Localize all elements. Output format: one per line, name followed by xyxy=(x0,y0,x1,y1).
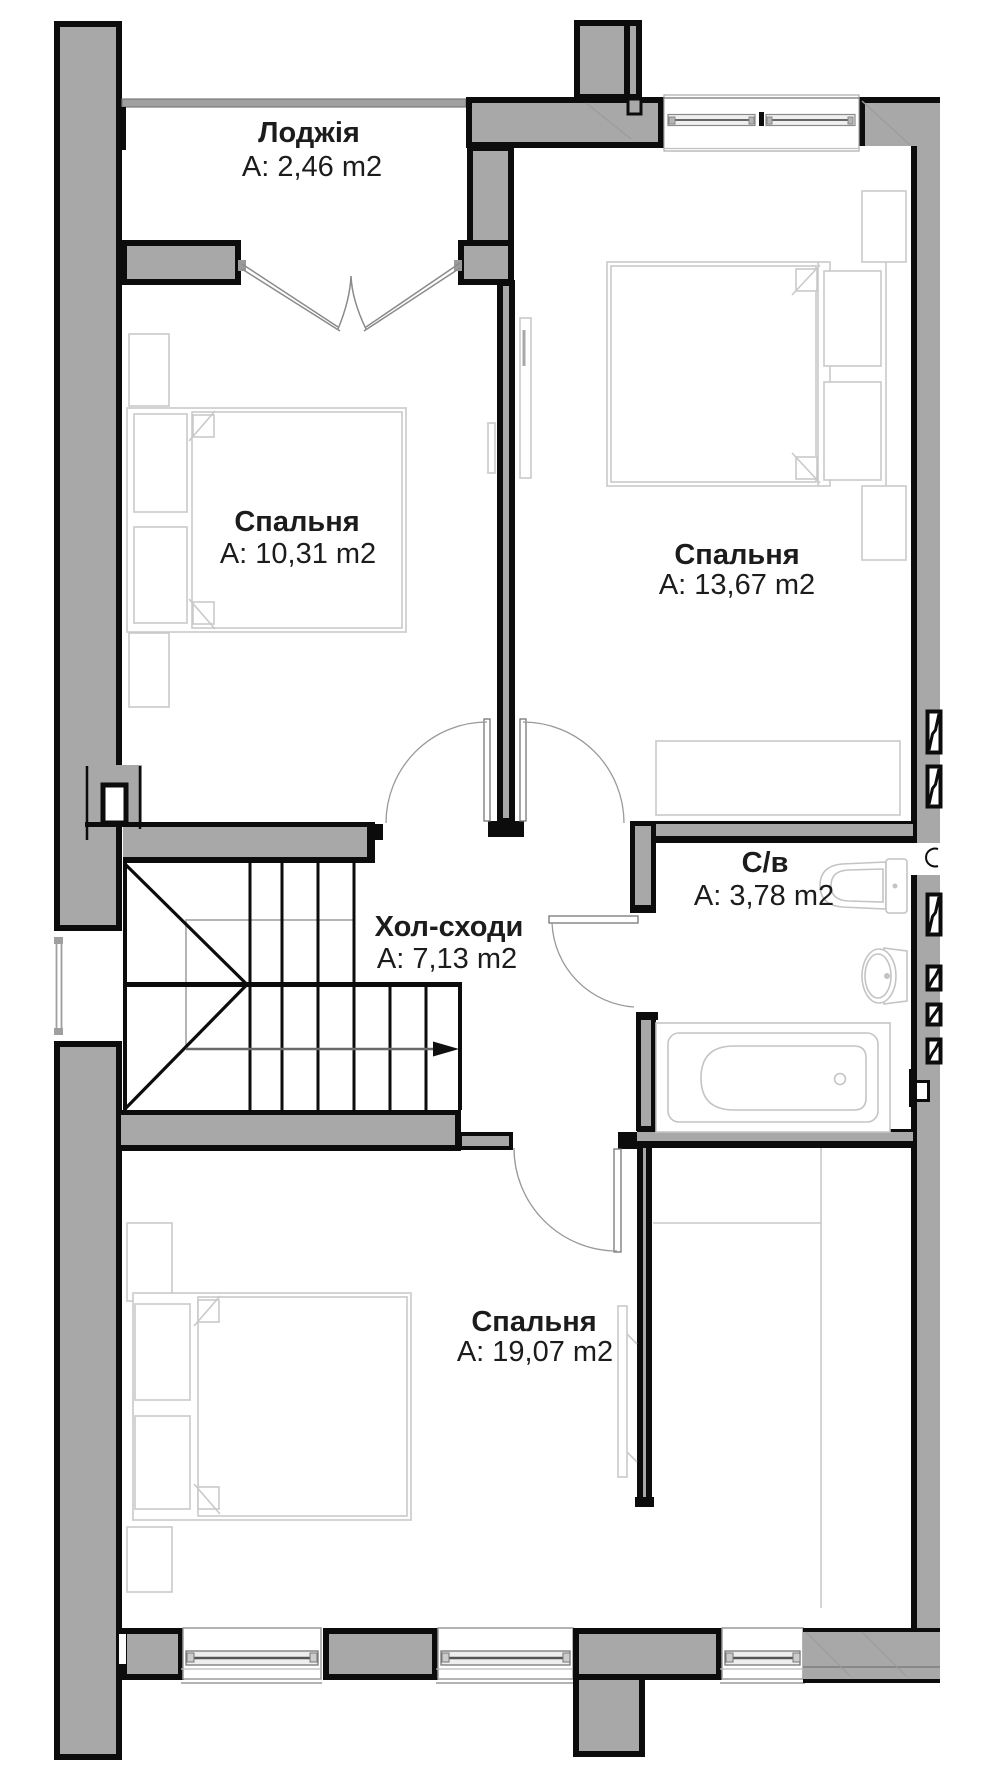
svg-text:Спальня: Спальня xyxy=(234,506,359,538)
svg-text:Спальня: Спальня xyxy=(674,539,799,571)
svg-text:A: 19,07 m2: A: 19,07 m2 xyxy=(457,1336,613,1368)
svg-text:Лоджія: Лоджія xyxy=(258,117,360,149)
svg-text:Спальня: Спальня xyxy=(471,1306,596,1338)
svg-text:A: 7,13 m2: A: 7,13 m2 xyxy=(377,943,517,975)
svg-text:A: 2,46 m2: A: 2,46 m2 xyxy=(242,151,382,183)
svg-text:A: 13,67 m2: A: 13,67 m2 xyxy=(659,569,815,601)
svg-text:С/в: С/в xyxy=(742,847,789,879)
svg-text:A: 3,78 m2: A: 3,78 m2 xyxy=(694,880,834,912)
svg-text:Хол-сходи: Хол-сходи xyxy=(375,911,524,943)
svg-text:A: 10,31 m2: A: 10,31 m2 xyxy=(220,538,376,570)
